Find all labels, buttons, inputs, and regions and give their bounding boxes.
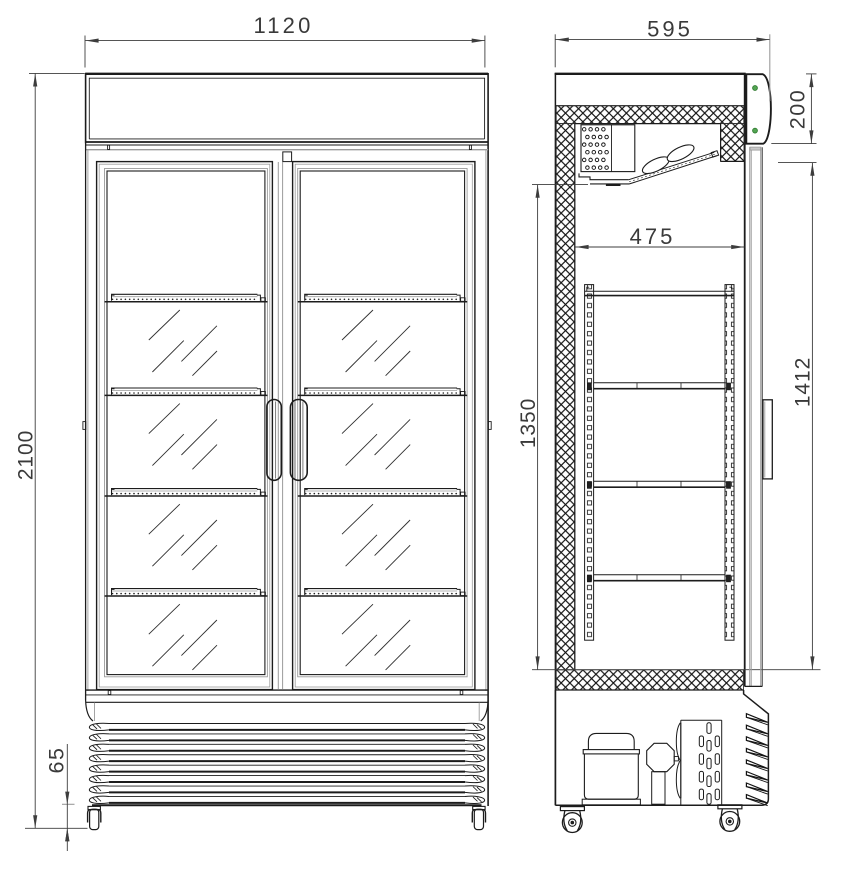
svg-text:65: 65 — [45, 747, 69, 774]
svg-text:2100: 2100 — [14, 430, 37, 480]
svg-text:1120: 1120 — [253, 13, 313, 38]
svg-text:595: 595 — [647, 17, 693, 42]
svg-text:1350: 1350 — [517, 398, 540, 448]
svg-text:200: 200 — [785, 89, 809, 129]
svg-text:475: 475 — [630, 224, 676, 249]
svg-text:1412: 1412 — [792, 357, 815, 407]
